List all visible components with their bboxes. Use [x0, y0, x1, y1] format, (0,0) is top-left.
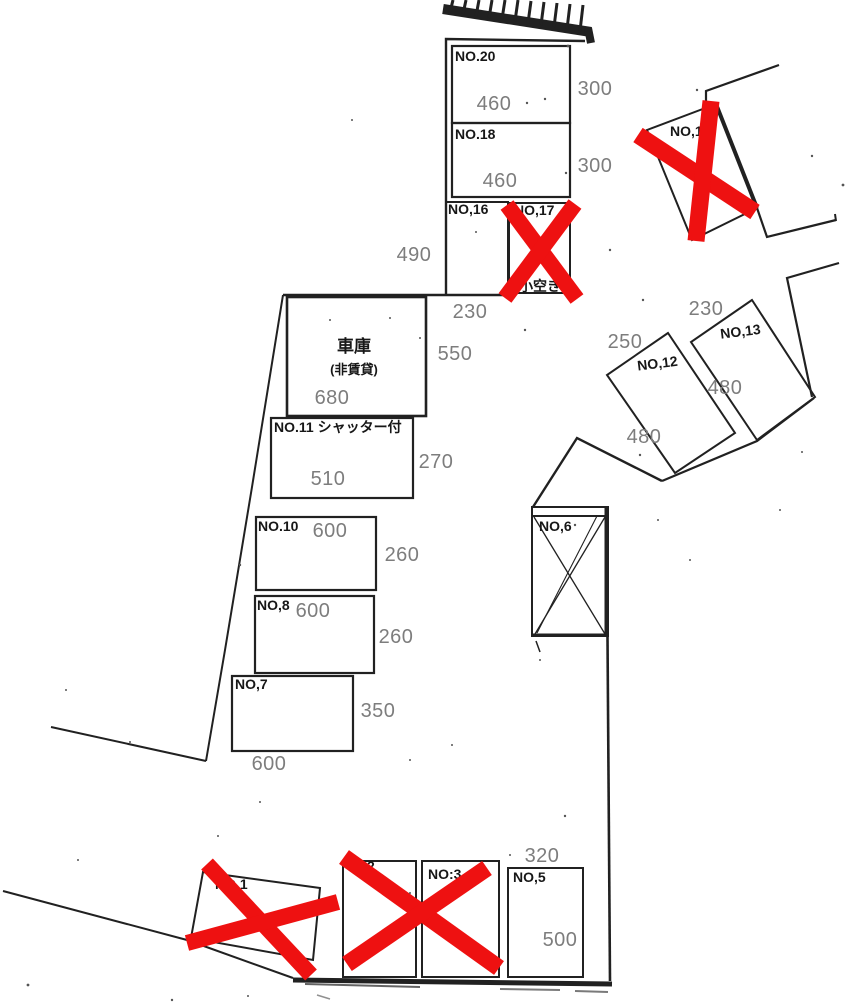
- svg-text:480: 480: [708, 377, 743, 399]
- svg-text:460: 460: [483, 170, 518, 192]
- svg-text:NO.18: NO.18: [455, 126, 496, 142]
- svg-text:NO.10: NO.10: [258, 518, 299, 534]
- svg-text:490: 490: [397, 244, 432, 266]
- svg-text:320: 320: [525, 845, 560, 867]
- svg-text:680: 680: [315, 387, 350, 409]
- svg-text:260: 260: [385, 544, 420, 566]
- svg-text:600: 600: [313, 520, 348, 542]
- svg-text:車庫: 車庫: [337, 336, 371, 356]
- svg-text:NO,6: NO,6: [539, 518, 572, 534]
- svg-text:510: 510: [311, 468, 346, 490]
- svg-text:600: 600: [252, 753, 287, 775]
- svg-text:NO,5: NO,5: [513, 869, 546, 885]
- svg-text:260: 260: [379, 626, 414, 648]
- svg-text:350: 350: [361, 700, 396, 722]
- svg-text:460: 460: [477, 93, 512, 115]
- svg-text:300: 300: [578, 78, 613, 100]
- svg-text:300: 300: [578, 155, 613, 177]
- svg-text:NO,8: NO,8: [257, 597, 290, 613]
- svg-text:(非賃貸): (非賃貸): [330, 362, 378, 377]
- svg-text:230: 230: [689, 298, 724, 320]
- svg-text:NO.11 シャッター付: NO.11 シャッター付: [274, 419, 402, 435]
- svg-text:230: 230: [453, 301, 488, 323]
- svg-text:NO.20: NO.20: [455, 48, 496, 64]
- svg-text:250: 250: [608, 331, 643, 353]
- svg-text:480: 480: [627, 426, 662, 448]
- svg-text:500: 500: [543, 929, 578, 951]
- svg-text:550: 550: [438, 343, 473, 365]
- svg-text:NO,7: NO,7: [235, 676, 268, 692]
- svg-text:NO,16: NO,16: [448, 201, 489, 217]
- svg-text:270: 270: [419, 451, 454, 473]
- svg-text:600: 600: [296, 600, 331, 622]
